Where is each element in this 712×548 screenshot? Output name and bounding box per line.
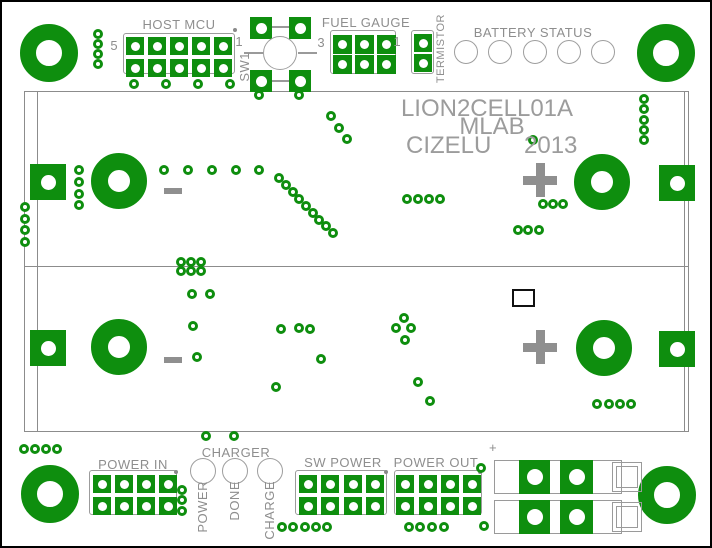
board-author: CIZELU xyxy=(406,132,526,156)
termistor-pin-hole xyxy=(419,59,428,68)
battery-status-led xyxy=(454,40,478,64)
via xyxy=(271,382,281,392)
host-mcu-pin-hole xyxy=(197,42,206,51)
power-in-pin-hole xyxy=(120,502,129,511)
via xyxy=(639,104,649,114)
via xyxy=(523,225,533,235)
battery-status-label: BATTERY STATUS xyxy=(453,25,613,41)
cell-2-right-hole-pad xyxy=(576,320,632,376)
power-out-pin-hole xyxy=(424,502,433,511)
via xyxy=(187,289,197,299)
via xyxy=(93,39,103,49)
terminal-pad-hole xyxy=(569,509,585,525)
host-mcu-pin-number-right: 1 xyxy=(233,34,245,49)
fuel-gauge-pin-number-left: 3 xyxy=(315,35,327,50)
cell-1-positive-contact-pad-hole xyxy=(670,176,685,191)
via xyxy=(399,313,409,323)
fuel-gauge-pin-hole xyxy=(360,40,369,49)
host-mcu-pin-hole xyxy=(219,42,228,51)
terminal-row-outline xyxy=(494,460,622,494)
via xyxy=(558,199,568,209)
power-in-pin-hole xyxy=(164,502,173,511)
via xyxy=(479,521,489,531)
via xyxy=(639,115,649,125)
via xyxy=(305,324,315,334)
via xyxy=(229,431,239,441)
via xyxy=(176,266,186,276)
mounting-hole xyxy=(637,24,695,82)
via xyxy=(41,444,51,454)
via xyxy=(192,352,202,362)
via xyxy=(404,522,414,532)
via xyxy=(225,79,235,89)
via xyxy=(20,237,30,247)
via xyxy=(342,134,352,144)
sw1-pad-hole xyxy=(295,76,306,87)
host-mcu-pin-hole xyxy=(219,64,228,73)
via xyxy=(538,199,548,209)
host-mcu-pin-hole xyxy=(175,64,184,73)
via xyxy=(415,522,425,532)
via xyxy=(276,324,286,334)
host-mcu-pin-hole xyxy=(197,64,206,73)
cell-2-minus-mark xyxy=(164,357,182,363)
via xyxy=(254,165,264,175)
via xyxy=(177,506,187,516)
via xyxy=(639,94,649,104)
cell-1-minus-mark xyxy=(164,188,182,194)
power-out-pin-hole xyxy=(446,480,455,489)
fuel-gauge-pin-hole xyxy=(382,60,391,69)
sw1-lead-line xyxy=(272,80,289,82)
via xyxy=(52,444,62,454)
via xyxy=(254,90,264,100)
sw-power-pin-hole xyxy=(371,480,380,489)
host-mcu-pin-hole xyxy=(131,64,140,73)
terminal-row-outline xyxy=(494,500,622,534)
host-mcu-pin-hole xyxy=(153,42,162,51)
board-year: 2013 xyxy=(524,132,604,156)
via xyxy=(294,90,304,100)
sw1-label: SW1 xyxy=(237,52,252,82)
via xyxy=(435,194,445,204)
battery-status-led xyxy=(488,40,512,64)
mounting-hole xyxy=(21,465,79,523)
via xyxy=(626,399,636,409)
via xyxy=(402,194,412,204)
power-in-pin-hole xyxy=(98,480,107,489)
battery-contact-rail-left xyxy=(37,91,38,432)
terminal-pad-hole xyxy=(527,509,543,525)
terminal-wire-entry-inner xyxy=(616,506,638,528)
via xyxy=(159,165,169,175)
via xyxy=(328,228,338,238)
via xyxy=(639,135,649,145)
power-out-pin-hole xyxy=(401,480,410,489)
via xyxy=(439,522,449,532)
power-out-pin-hole xyxy=(424,480,433,489)
fuel-gauge-pin-hole xyxy=(360,60,369,69)
termistor-pin-hole xyxy=(419,39,428,48)
via xyxy=(231,165,241,175)
via xyxy=(193,79,203,89)
via xyxy=(322,522,332,532)
via xyxy=(300,522,310,532)
host-mcu-pin1-dot xyxy=(233,28,237,32)
sw-power-pin-hole xyxy=(326,480,335,489)
via xyxy=(93,49,103,59)
via xyxy=(201,431,211,441)
terminal-plus-label: + xyxy=(489,440,503,456)
fuel-gauge-pin-hole xyxy=(382,40,391,49)
cell-2-plus-mark-v xyxy=(536,330,545,364)
via xyxy=(413,194,423,204)
power-out-pin-hole xyxy=(446,502,455,511)
sw-power-pin-hole xyxy=(326,502,335,511)
power-in-pin-hole xyxy=(98,502,107,511)
power-out-pin-hole xyxy=(468,502,477,511)
via xyxy=(427,522,437,532)
via xyxy=(413,377,423,387)
via xyxy=(288,522,298,532)
via xyxy=(406,323,416,333)
via xyxy=(639,125,649,135)
sw1-button-body xyxy=(263,36,297,70)
sw-power-pin-hole xyxy=(304,502,313,511)
cell-1-right-hole-pad xyxy=(574,154,630,210)
via xyxy=(334,123,344,133)
via xyxy=(604,399,614,409)
power-in-pin1-dot xyxy=(174,470,178,474)
via xyxy=(74,189,84,199)
battery-status-led xyxy=(591,40,615,64)
via xyxy=(74,165,84,175)
battery-cell-divider xyxy=(24,266,689,267)
sw-power-pin-hole xyxy=(349,480,358,489)
via xyxy=(277,522,287,532)
via xyxy=(391,323,401,333)
sw1-lead-line xyxy=(272,26,289,28)
via xyxy=(311,522,321,532)
via xyxy=(177,495,187,505)
via xyxy=(129,79,139,89)
host-mcu-pin-hole xyxy=(153,64,162,73)
via xyxy=(20,225,30,235)
power-in-pin-hole xyxy=(142,502,151,511)
battery-contact-rail-right xyxy=(684,91,685,432)
via xyxy=(161,79,171,89)
cell-2-positive-contact-pad-hole xyxy=(670,342,685,357)
cell-2-left-hole-pad xyxy=(91,319,147,375)
via xyxy=(425,396,435,406)
power-in-pin-hole xyxy=(142,480,151,489)
cell-2-negative-contact-pad-hole xyxy=(41,341,56,356)
via xyxy=(592,399,602,409)
via xyxy=(177,485,187,495)
fuel-gauge-pin-number-right: 1 xyxy=(391,34,403,49)
via xyxy=(20,214,30,224)
power-in-pin-hole xyxy=(164,480,173,489)
component-square-outline xyxy=(512,289,535,307)
cell-1-plus-mark-v xyxy=(536,163,545,197)
power-out-pin-hole xyxy=(468,480,477,489)
sw-power-pin-hole xyxy=(349,502,358,511)
via xyxy=(188,321,198,331)
via xyxy=(294,323,304,333)
charger-led-label: POWER xyxy=(195,481,210,533)
sw1-pad-hole xyxy=(256,76,267,87)
host-mcu-label: HOST MCU xyxy=(109,17,249,33)
via xyxy=(326,111,336,121)
charger-led-label: CHARGE xyxy=(262,481,277,540)
via xyxy=(20,202,30,212)
fuel-gauge-pin-hole xyxy=(338,40,347,49)
mounting-hole xyxy=(638,466,696,524)
pcb-layout-canvas: HOST MCU51FUEL GAUGE31TERMISTORPOWER INS… xyxy=(0,0,712,548)
via xyxy=(30,444,40,454)
host-mcu-pin-number-left: 5 xyxy=(108,38,120,53)
via xyxy=(186,266,196,276)
fuel-gauge-pin-hole xyxy=(338,60,347,69)
via xyxy=(205,289,215,299)
via xyxy=(513,225,523,235)
via xyxy=(534,225,544,235)
via xyxy=(19,444,29,454)
fuel-gauge-label: FUEL GAUGE xyxy=(296,15,436,31)
terminal-wire-entry-inner xyxy=(616,466,638,488)
sw-power-pin-hole xyxy=(304,480,313,489)
power-out-pin-hole xyxy=(401,502,410,511)
power-in-pin-hole xyxy=(120,480,129,489)
via xyxy=(74,200,84,210)
via xyxy=(615,399,625,409)
termistor-label: TERMISTOR xyxy=(435,14,447,83)
via xyxy=(316,354,326,364)
via xyxy=(476,463,486,473)
via xyxy=(196,266,206,276)
via xyxy=(207,165,217,175)
host-mcu-pin-hole xyxy=(175,42,184,51)
via xyxy=(424,194,434,204)
terminal-pad-hole xyxy=(569,469,585,485)
battery-status-led xyxy=(557,40,581,64)
host-mcu-pin-hole xyxy=(131,42,140,51)
via xyxy=(93,59,103,69)
sw-power-pin-hole xyxy=(371,502,380,511)
cell-1-negative-contact-pad-hole xyxy=(41,175,56,190)
cell-1-left-hole-pad xyxy=(91,153,147,209)
sw1-lead-line xyxy=(298,52,317,54)
sw1-pad-hole xyxy=(256,23,267,34)
sw1-pad-hole xyxy=(295,23,306,34)
terminal-pad-hole xyxy=(527,469,543,485)
via xyxy=(93,29,103,39)
mounting-hole xyxy=(20,24,78,82)
via xyxy=(548,199,558,209)
via xyxy=(183,165,193,175)
via xyxy=(400,335,410,345)
battery-status-led xyxy=(523,40,547,64)
via xyxy=(74,177,84,187)
charger-led-label: DONE xyxy=(227,481,242,521)
